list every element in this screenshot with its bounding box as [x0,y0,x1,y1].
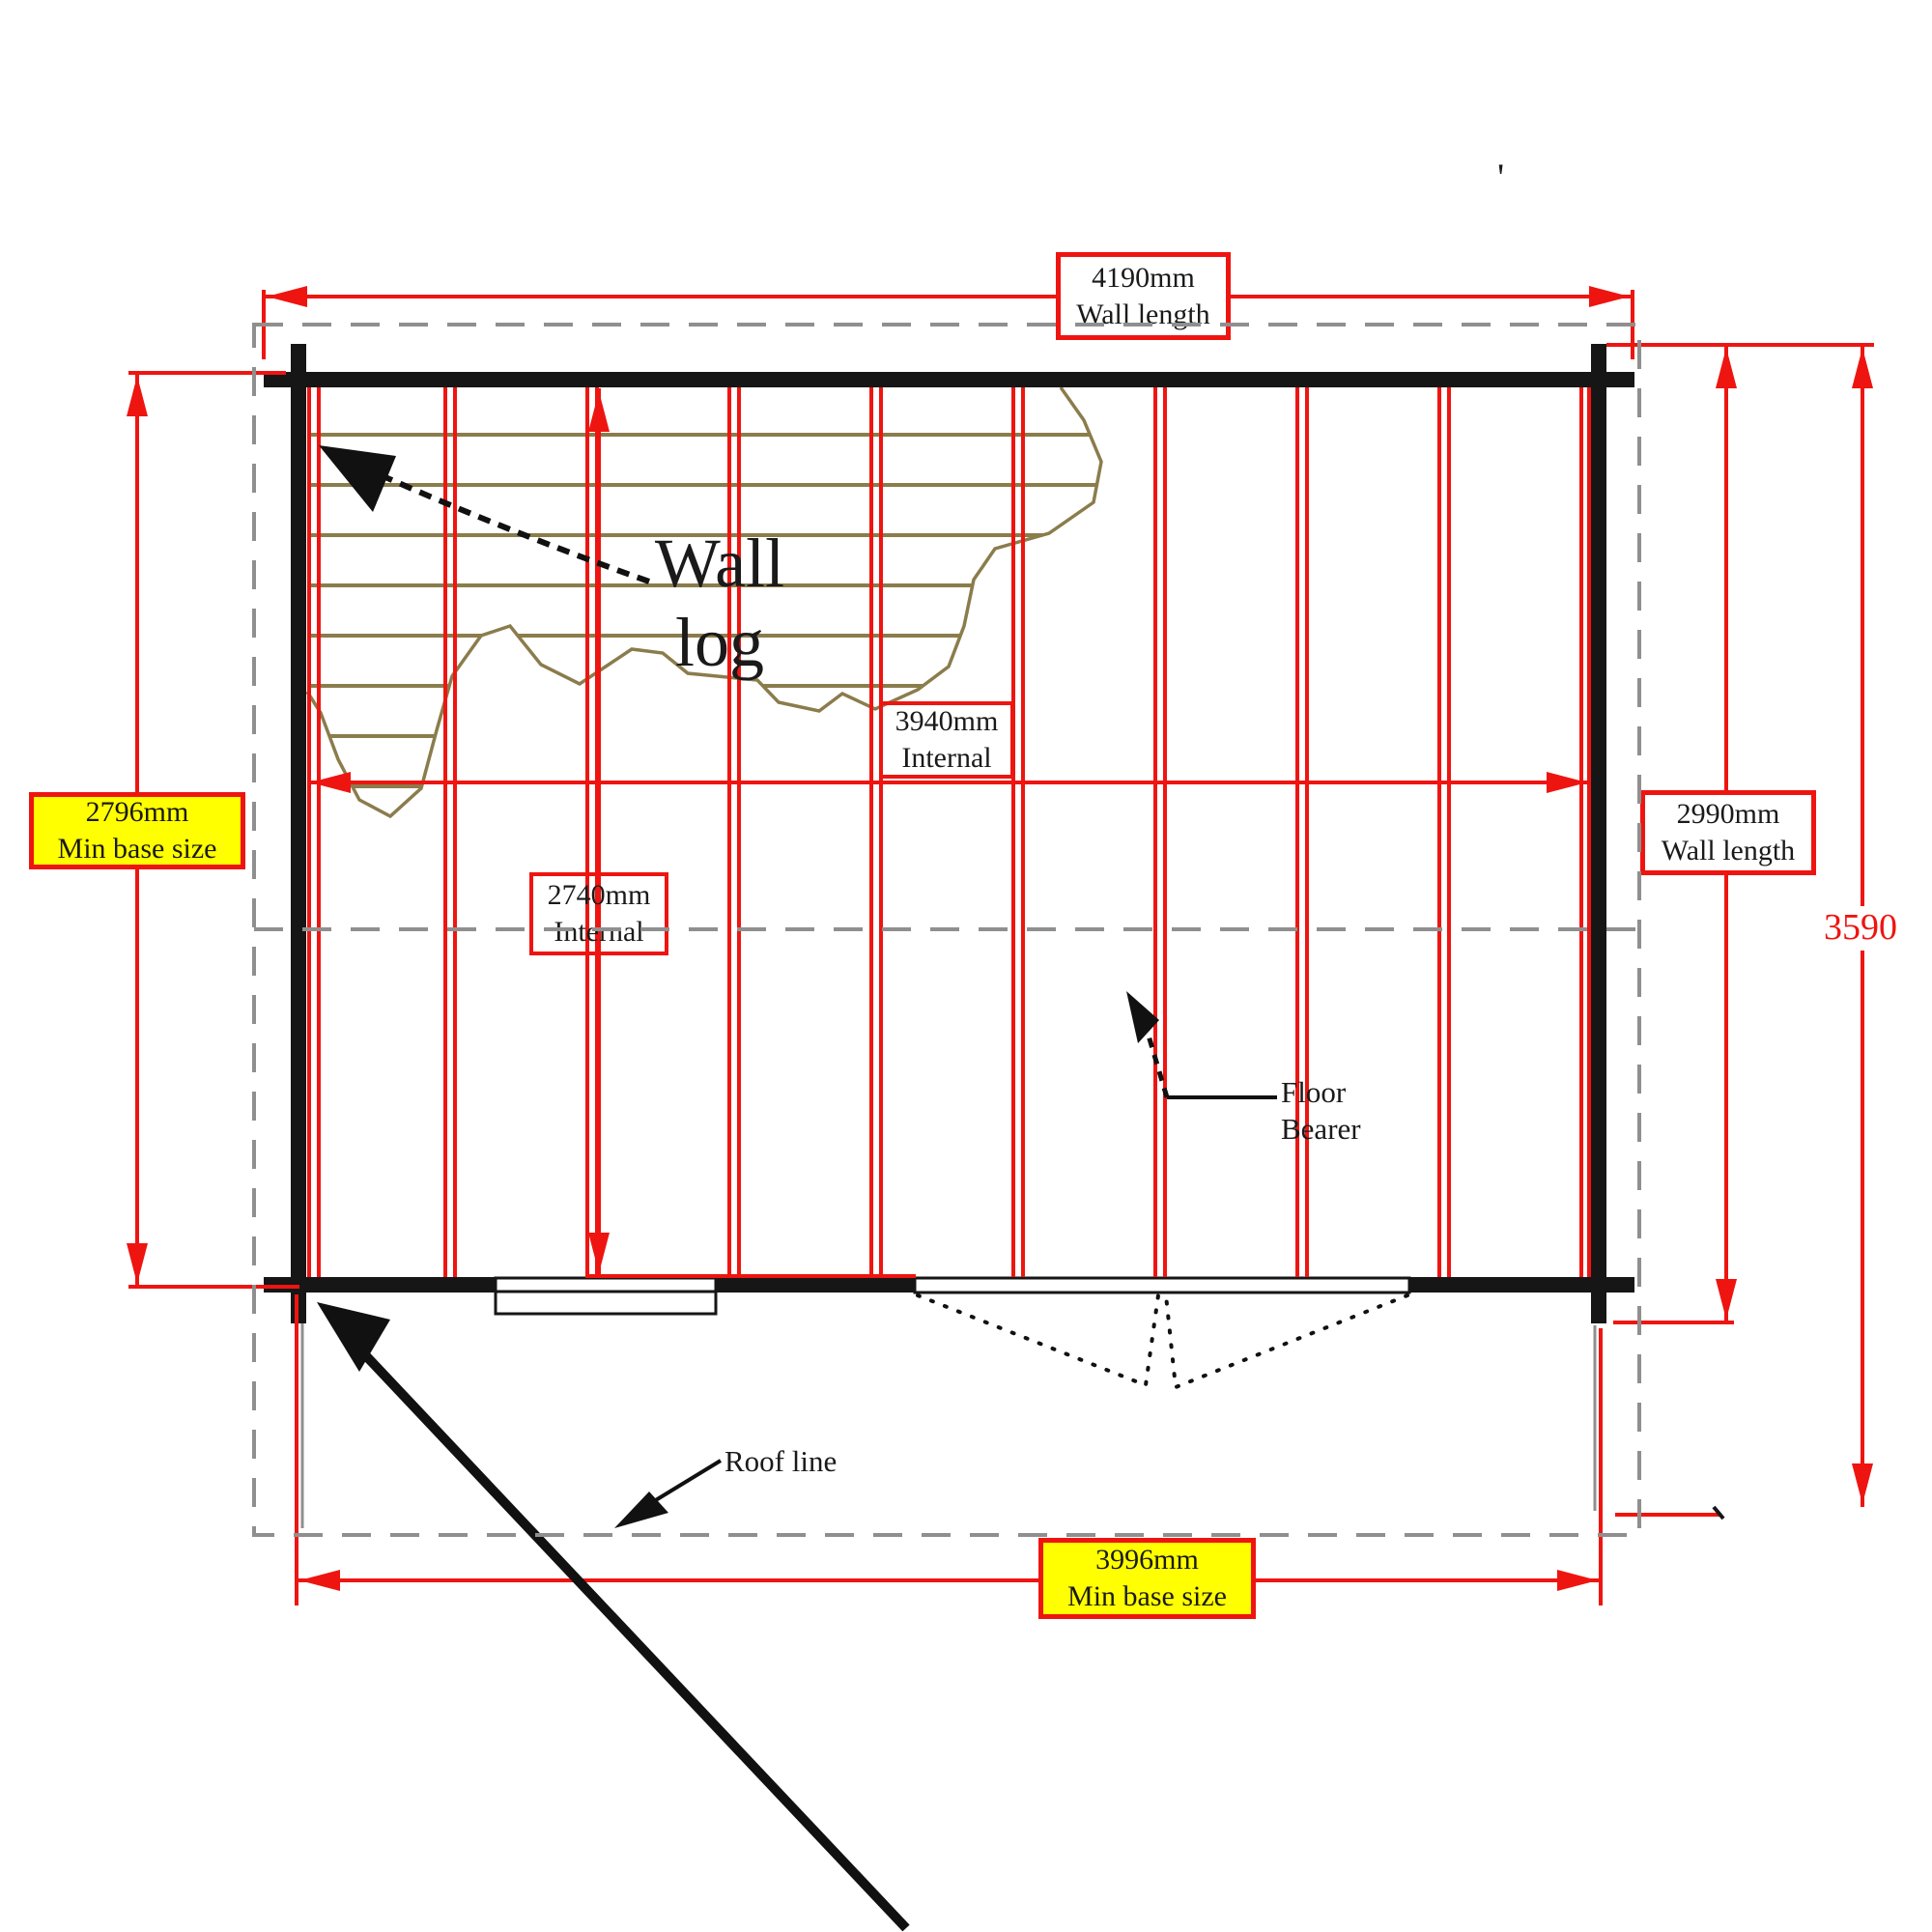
door-leaf-left [918,1295,1158,1385]
dim-caption: Internal [554,914,643,951]
door-threshold [915,1278,1409,1293]
roof-line-label: Roof line [724,1443,837,1480]
dim-label-internal-width: 3940mm Internal [879,701,1014,779]
wall-log-label: Wall log [609,524,831,682]
dim-label-wall-length-top: 4190mm Wall length [1056,252,1231,340]
dim-caption: Internal [901,740,991,777]
floor-bearer-label: Floor Bearer [1281,1074,1361,1148]
top-wall [264,372,1634,387]
dim-label-min-base-bottom: 3996mm Min base size [1038,1538,1256,1619]
dim-value: 2990mm [1677,796,1780,833]
corner-detail-arrow [317,1302,906,1928]
dim-label-wall-length-right: 2990mm Wall length [1640,790,1816,875]
door-swing [918,1295,1407,1387]
door-leaf-right [1166,1295,1407,1387]
dim-caption: Min base size [58,831,217,867]
floor-bearer-line2: Bearer [1281,1111,1361,1148]
right-wall [1591,344,1606,1323]
roof-line-arrow [614,1461,721,1528]
dim-caption: Min base size [1067,1578,1227,1615]
dim-value: 4190mm [1092,260,1195,297]
walls [264,344,1634,1323]
floor-plan-canvas: 4190mm Wall length 2796mm Min base size … [0,0,1932,1932]
floor-bearer-arrow [1126,991,1277,1097]
dim-text-3590: 3590 [1824,906,1897,949]
dim-label-min-base-left: 2796mm Min base size [29,792,245,869]
dim-value: 3996mm [1095,1542,1199,1578]
stray-mark: ' [1497,155,1504,200]
dim-internal-2740 [585,388,916,1276]
floor-bearer-line1: Floor [1281,1074,1361,1111]
dim-bottom-3996 [297,1294,1601,1605]
dim-caption: Wall length [1076,297,1209,333]
wall-log-line1: Wall [609,524,831,603]
dim-value: 3940mm [895,703,999,740]
dim-label-internal-depth: 2740mm Internal [529,872,668,955]
plan-drawing [0,0,1932,1932]
dim-value: 2796mm [86,794,189,831]
dim-top-4190 [264,286,1633,359]
left-wall [291,344,306,1323]
wall-log-line2: log [609,603,831,682]
window [496,1278,716,1314]
dim-caption: Wall length [1662,833,1795,869]
floor-bearers [309,387,1589,1277]
dim-value: 2740mm [548,877,651,914]
